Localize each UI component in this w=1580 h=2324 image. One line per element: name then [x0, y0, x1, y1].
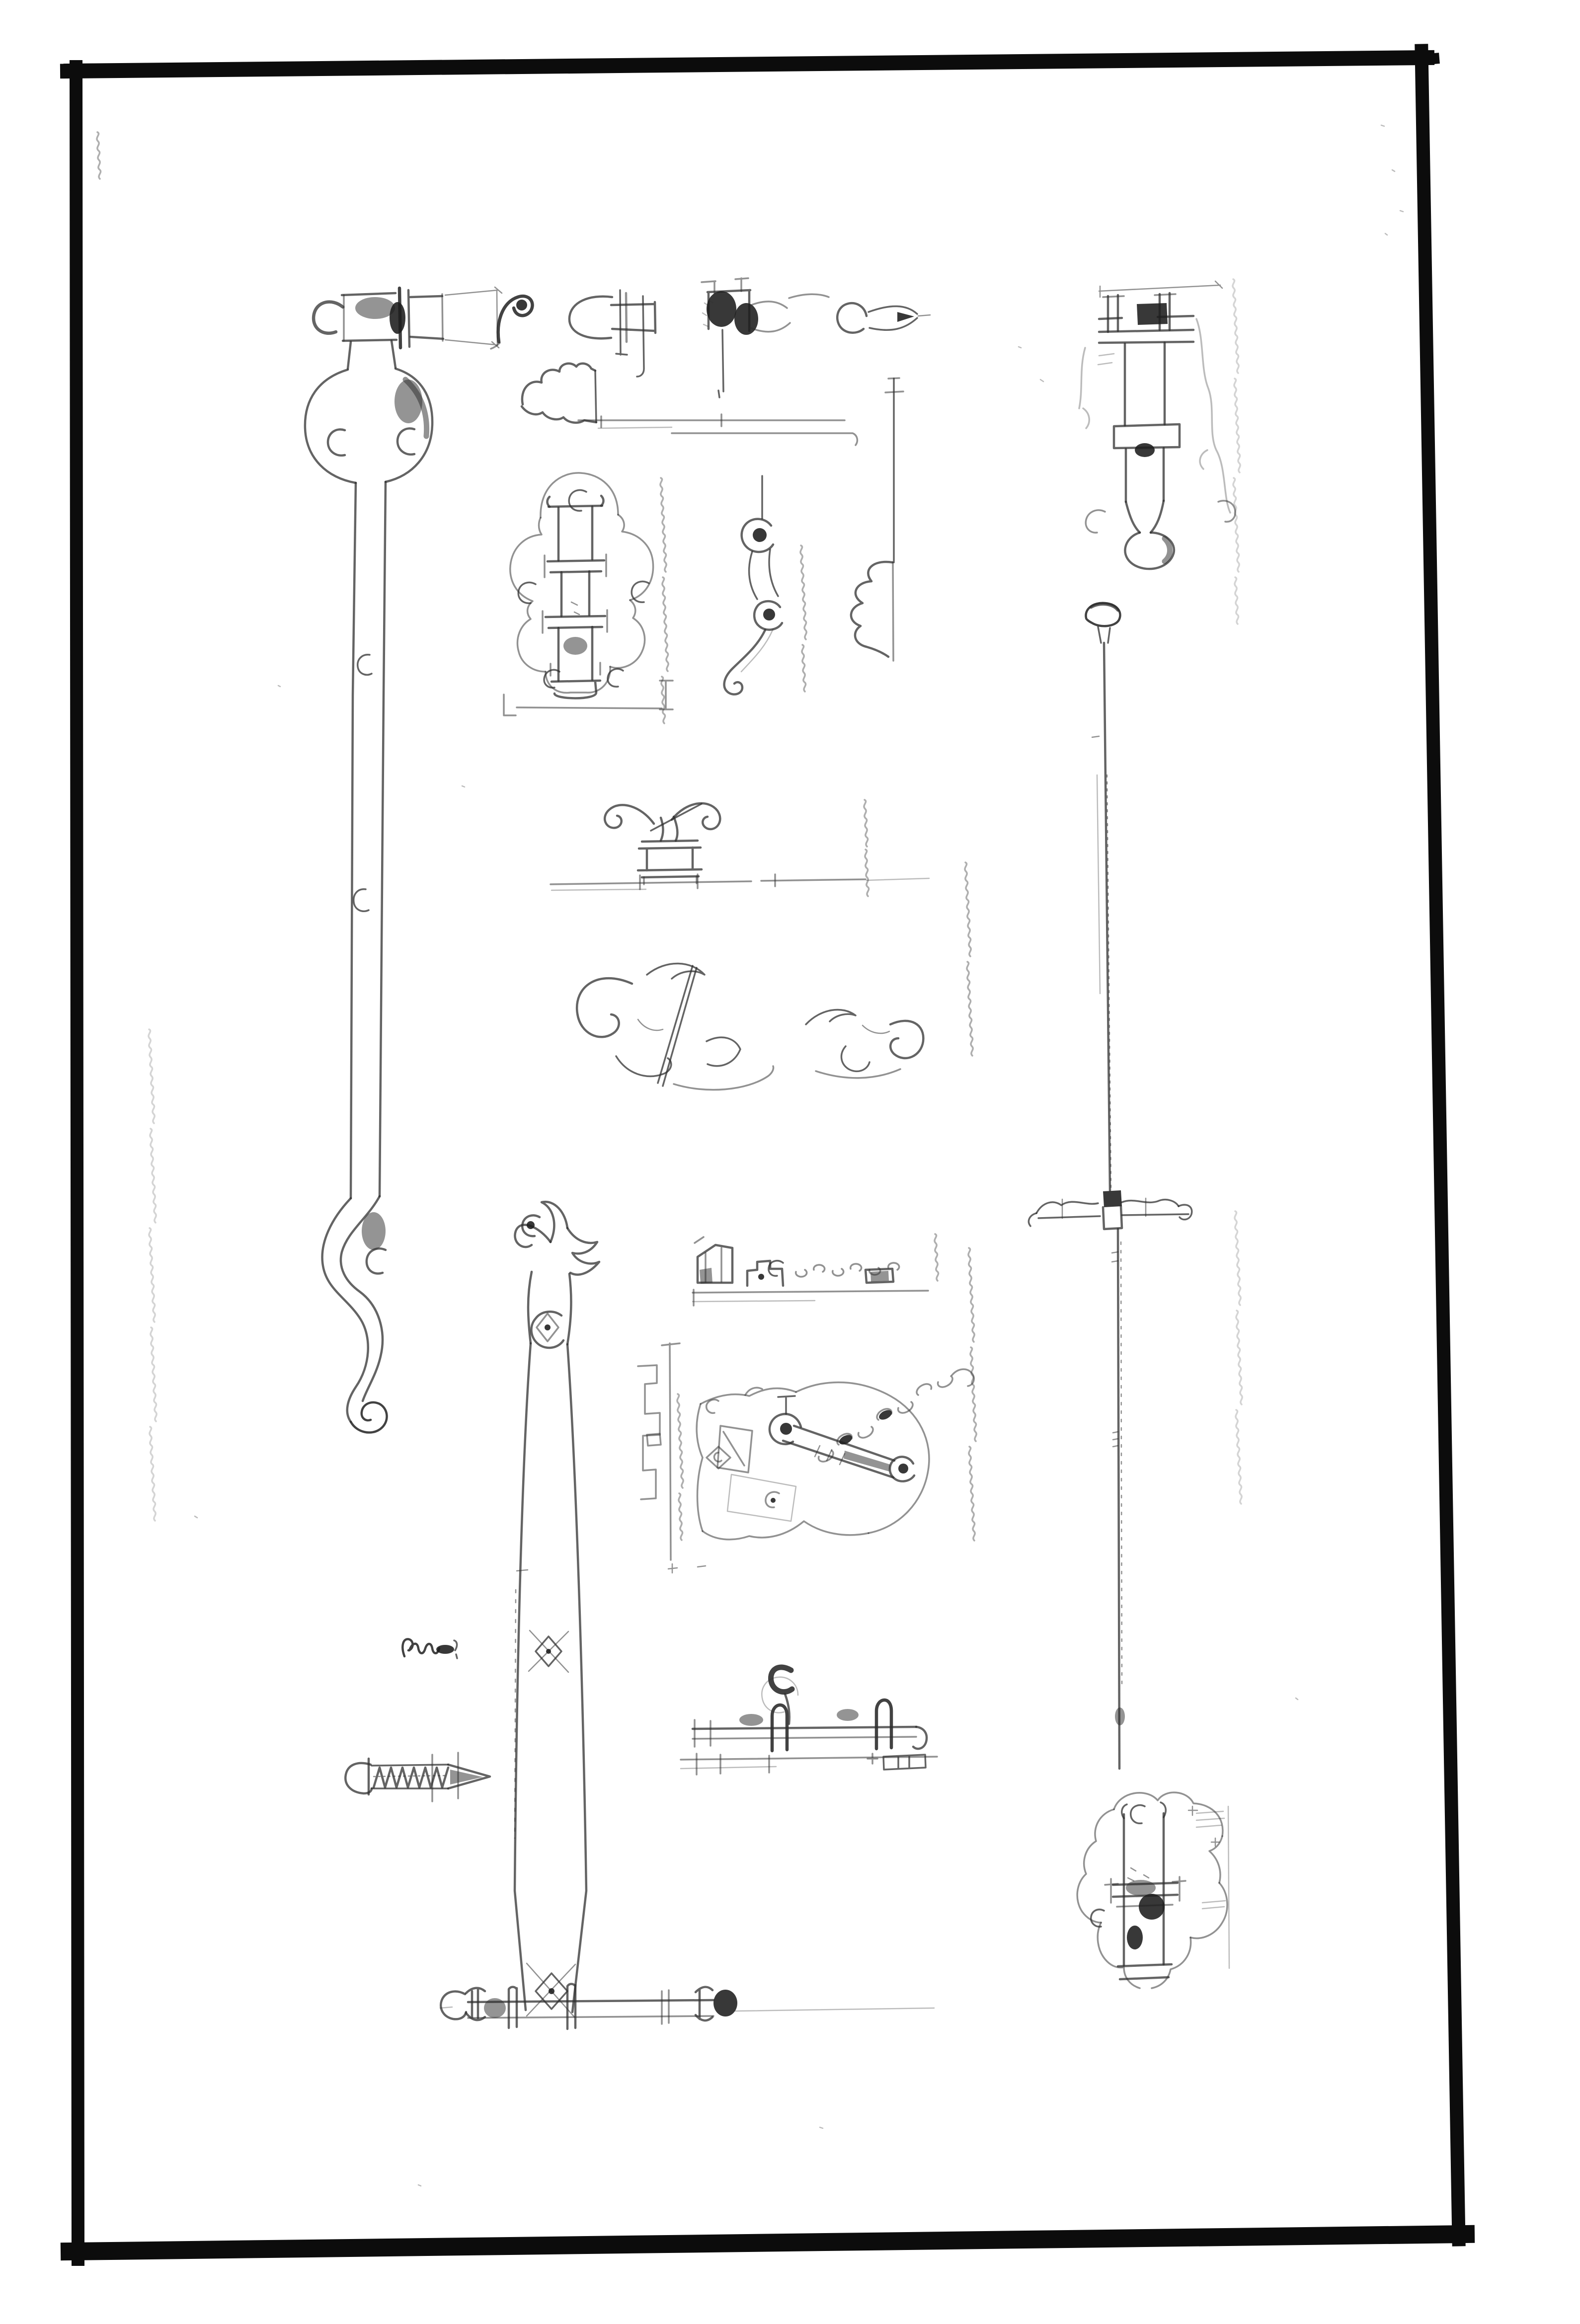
annotation-column	[965, 862, 973, 1056]
plate-drawing: hand-ruled rectangular border frame long…	[0, 0, 1580, 2324]
annotation-column	[935, 1234, 939, 1281]
annotation-column	[1235, 1211, 1242, 1504]
figure-moulding-profile: beaded moulding section profile with bas…	[522, 364, 857, 445]
figure-baluster-profile: turned drop section with bead profile on…	[851, 378, 903, 661]
annotation-column	[1233, 279, 1240, 624]
figure-hand-screw: threaded screw with domed slotted head	[345, 1753, 490, 1801]
annotation-column	[97, 132, 101, 179]
paper-specks: paper specks and scan noise	[195, 125, 1403, 2186]
annotation-column	[660, 478, 668, 723]
figure-ring-catch: ring with pointed beak catch	[837, 303, 930, 332]
border-frame: hand-ruled rectangular border frame	[68, 51, 1466, 2259]
annotation-column	[677, 1394, 683, 1540]
figure-barrel-bolt-plate: vertical barrel bolt on scalloped quatre…	[504, 473, 673, 715]
handwritten-annotations: faint handwritten margin notes (illegibl…	[97, 132, 1242, 1541]
figure-bar-with-finials: bar with turned ball finials and keeper …	[440, 1984, 934, 2029]
annotation-column	[149, 1029, 157, 1521]
figure-hook-latch: hook latch with two eyes and scroll tail	[724, 476, 782, 695]
annotation-column	[864, 800, 869, 896]
figure-latch-keeper-row: latch keeper, lift piece, chain and stap…	[693, 1237, 928, 1306]
figure-latch-keeper-top: inked latch keeper bracket with staple p…	[702, 278, 829, 397]
figure-scroll-handle-pedestal: double-volute handle on moulded pedestal…	[551, 803, 929, 890]
figure-foliage-scrollwork: foliage scrollwork studies	[577, 963, 923, 1089]
figure-espagnolette-head: espagnolette bolt head with brackets, dr…	[1079, 281, 1235, 569]
figure-bolt-plate-bottom-right: vertical bolt channel on scalloped plate	[1077, 1792, 1229, 1988]
annotation-column	[968, 1248, 976, 1541]
figure-strap-bolt-left: long vertical strap bolt with eye bracke…	[305, 287, 502, 1433]
annotation-column	[800, 545, 806, 692]
figure-tapered-strap: tapered strap with scroll-and-flame top …	[515, 1202, 706, 2017]
scanned-plate-page: hand-ruled rectangular border frame long…	[0, 0, 1580, 2324]
figure-latch-bar: latch bar through staples with thumb lif…	[681, 1667, 937, 1775]
figure-written-note: handwritten word (illegible)	[402, 1639, 457, 1658]
figure-thumb-latch: thumb latch lever with pivot, eye and ch…	[638, 1343, 974, 1560]
figure-espagnolette-rod: long espagnolette rod with knob and scal…	[1028, 603, 1191, 1769]
